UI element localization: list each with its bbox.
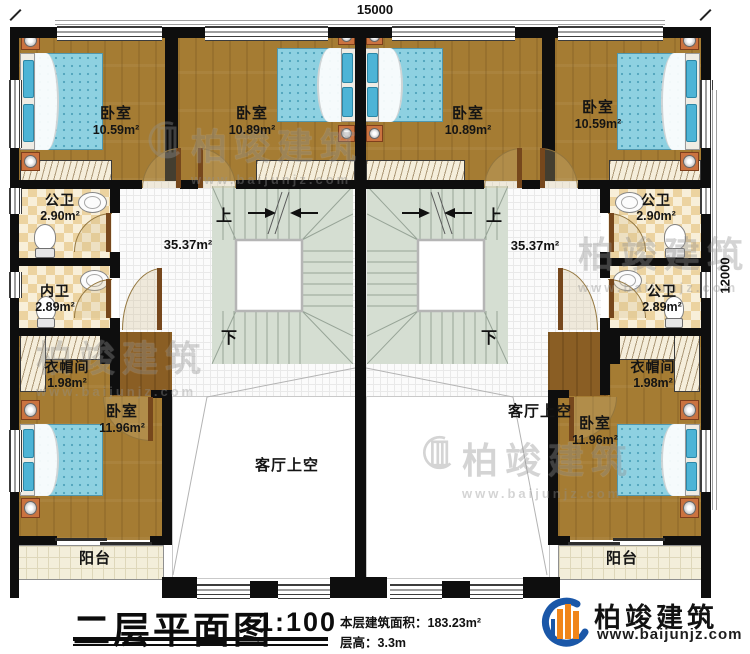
wall <box>110 188 120 213</box>
door-leaf <box>106 213 111 252</box>
wall <box>610 258 701 266</box>
wall <box>522 180 540 189</box>
dimension-width: 15000 <box>345 2 405 17</box>
wall <box>548 390 569 398</box>
door-leaf <box>198 148 203 188</box>
wall <box>150 536 172 545</box>
label-cloak-left: 衣帽间1.98m² <box>22 360 112 390</box>
wall <box>600 252 610 278</box>
wall <box>600 188 610 213</box>
label-bath-left-bottom: 内卫2.89m² <box>15 284 95 314</box>
door-leaf <box>609 213 614 252</box>
wall <box>355 38 366 588</box>
wall <box>19 258 110 266</box>
door-leaf <box>517 148 522 188</box>
window <box>390 584 442 599</box>
label-balcony-right: 阳台 <box>572 551 672 568</box>
door-leaf <box>609 279 614 318</box>
wall <box>365 180 484 189</box>
wall <box>608 328 701 336</box>
wall <box>442 581 470 598</box>
label-bedroom-3: 卧室10.89m² <box>413 106 523 137</box>
label-hall-right-area: 35.37m² <box>485 238 585 253</box>
window <box>197 584 250 599</box>
window <box>470 584 523 599</box>
label-hall-left-area: 35.37m² <box>138 237 238 252</box>
wall <box>548 536 570 545</box>
label-bedroom-1: 卧室10.59m² <box>61 106 171 137</box>
title-underline <box>73 637 328 641</box>
label-living-void-right: 客厅上空 <box>480 404 600 421</box>
label-balcony-left: 阳台 <box>45 551 145 568</box>
door-leaf <box>176 148 181 188</box>
door-leaf <box>558 268 563 330</box>
window <box>392 26 515 41</box>
dimension-line <box>55 24 665 25</box>
label-bedroom-4: 卧室10.59m² <box>543 100 653 131</box>
window <box>558 26 663 41</box>
sliding-door <box>55 538 107 541</box>
door-leaf <box>540 148 545 188</box>
wall <box>663 536 701 545</box>
floor-height-note: 层高：3.3m <box>340 632 406 651</box>
window <box>9 430 22 492</box>
door-leaf <box>106 279 111 318</box>
window <box>205 26 328 41</box>
label-stairs-down-right: 下 <box>481 324 497 348</box>
label-bedroom-2: 卧室10.89m² <box>197 106 307 137</box>
brand-url: www.baijunjz.com <box>597 626 742 643</box>
dimension-line <box>55 20 665 21</box>
window <box>57 26 162 41</box>
brand-logo-icon <box>537 597 589 651</box>
wall <box>236 180 355 189</box>
wall <box>19 536 57 545</box>
label-bath-left-top: 公卫2.90m² <box>20 193 100 223</box>
wall <box>250 581 278 598</box>
title-underline <box>73 644 328 646</box>
scale-label: 1:100 <box>258 607 337 638</box>
wall <box>19 328 112 336</box>
label-bath-right-top: 公卫2.90m² <box>616 193 696 223</box>
wall <box>151 390 172 398</box>
wall <box>330 577 387 598</box>
sliding-door <box>613 538 665 541</box>
wall <box>110 252 120 278</box>
dimension-height: 12000 <box>695 245 750 305</box>
window <box>9 80 22 148</box>
wall <box>578 180 701 189</box>
label-bath-right-bottom: 公卫2.89m² <box>622 284 702 314</box>
label-living-void-left: 客厅上空 <box>227 458 347 475</box>
door-leaf <box>157 268 162 330</box>
label-bedroom-5: 卧室11.96m² <box>67 404 177 435</box>
wall <box>19 180 142 189</box>
label-stairs-up-right: 上 <box>486 202 502 226</box>
label-stairs-up-left: 上 <box>216 202 232 226</box>
sliding-door <box>568 542 620 545</box>
label-cloak-right: 衣帽间1.98m² <box>608 360 698 390</box>
floor-plan: 柏竣建筑 www.baijunjz.com 柏竣建筑 www.baijunjz.… <box>0 0 750 654</box>
label-stairs-down-left: 下 <box>221 324 237 348</box>
wall <box>162 577 197 598</box>
wall <box>523 577 560 598</box>
floor-area-note: 本层建筑面积：183.23m² <box>340 612 481 631</box>
window <box>278 584 330 599</box>
sliding-door <box>100 542 152 545</box>
wall <box>180 180 198 189</box>
